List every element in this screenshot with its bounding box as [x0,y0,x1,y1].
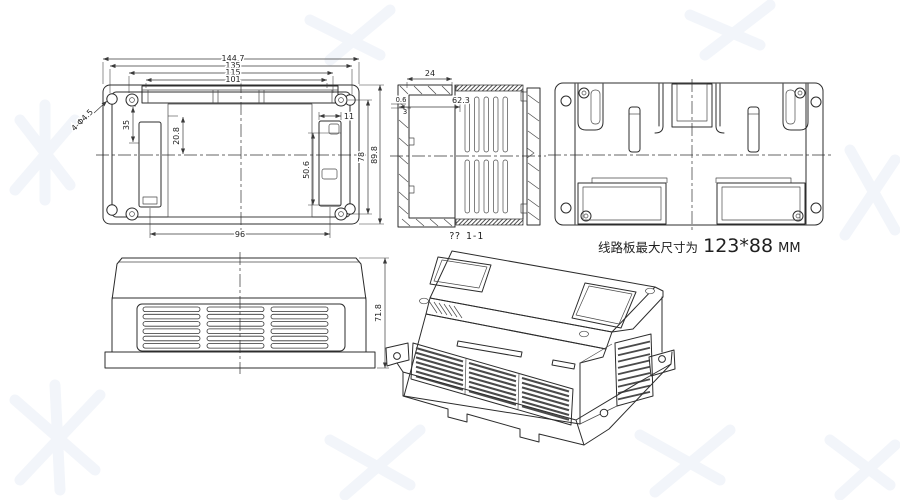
dim-78: 78 [357,152,366,162]
rear-bracket-right [716,178,791,183]
iso-corner-boss [646,288,655,294]
section-top-hatch [456,85,523,91]
pcb-area [168,104,312,217]
iso-label-slot [457,341,522,357]
dim-50-6: 50.6 [302,161,311,179]
view-section: 24 0.6 3 62.3 ?? 1-1 [390,69,546,242]
dim-71-8: 71.8 [374,304,383,322]
dim-24: 24 [425,69,435,78]
rear-bracket-left [592,178,667,183]
dim-62-3: 62.3 [452,96,470,105]
view-front: 144.7 135 115 101 4-Φ4.5 35 20.8 11 50.6… [70,54,384,239]
mount-hole [107,94,117,104]
iso-mount-hole [659,356,666,363]
mount-hole [561,203,571,213]
iso-mount-hole [600,409,608,417]
iso-top-opening-left [430,257,491,292]
mount-hole [811,203,821,213]
view-isometric [386,251,675,445]
section-bottom-hatch [456,219,523,225]
iso-top-recess-right [572,283,636,328]
note-size-value: 123*88 [703,235,773,257]
iso-mount-hole [394,353,401,360]
note-unit: MM [778,241,800,256]
technical-drawing: 144.7 135 115 101 4-Φ4.5 35 20.8 11 50.6… [0,0,900,500]
iso-corner-boss [580,331,589,337]
dim-96: 96 [235,230,245,239]
dim-89-8: 89.8 [370,146,379,164]
note-board-size: 线路板最大尺寸为 123*88 MM [598,235,801,257]
din-slot-left [139,122,161,207]
iso-small-slot [552,360,575,369]
mount-hole [107,205,117,215]
dim-101: 101 [225,75,240,84]
section-label: ?? 1-1 [449,231,484,242]
dim-20-8: 20.8 [172,127,181,145]
rear-hook-right [716,84,724,133]
rear-hook-left [655,84,663,133]
mount-hole [561,96,571,106]
dim-0-6: 0.6 [396,96,407,104]
front-connector-strip [142,86,338,103]
section-right-ticks [528,95,539,220]
iso-corner-boss [420,298,429,304]
note-prefix: 线路板最大尺寸为 [598,240,698,255]
rear-window-right [717,183,805,224]
dim-3: 3 [403,108,407,116]
rear-window-left [578,183,666,224]
drawing-canvas: 144.7 135 115 101 4-Φ4.5 35 20.8 11 50.6… [0,0,900,500]
iso-lid-band [426,298,612,349]
view-side: 71.8 [105,252,389,374]
mount-hole [811,97,821,107]
section-vent-slots [465,97,508,213]
dim-35: 35 [122,120,131,130]
dim-11: 11 [344,112,354,121]
view-rear [548,79,831,230]
iso-base-outline [397,352,672,445]
